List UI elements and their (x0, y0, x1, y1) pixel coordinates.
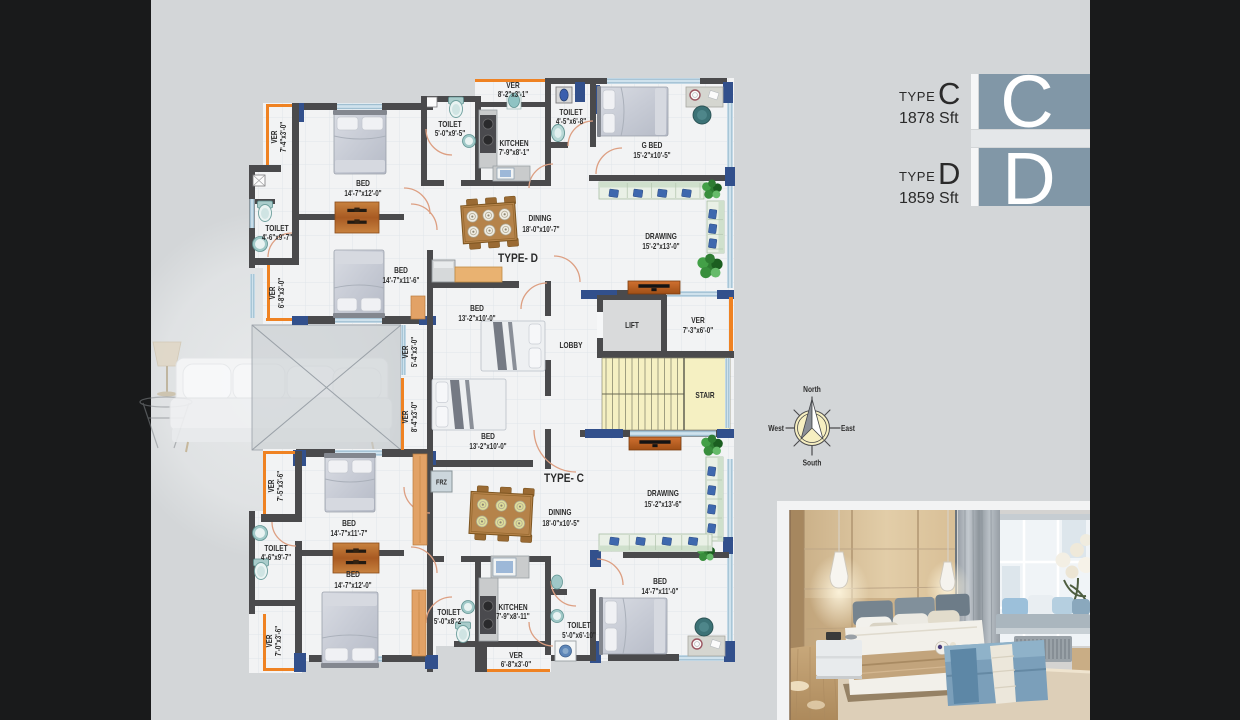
svg-text:15'-2"x10'-5": 15'-2"x10'-5" (633, 152, 670, 160)
svg-text:13'-2"x10'-0": 13'-2"x10'-0" (458, 315, 495, 323)
svg-text:BED: BED (470, 303, 484, 313)
svg-text:7'-5"x3'-6": 7'-5"x3'-6" (277, 471, 285, 501)
svg-text:4'-6"x9'-7": 4'-6"x9'-7" (262, 234, 292, 242)
svg-text:4'-5"x6'-8": 4'-5"x6'-8" (556, 118, 586, 126)
svg-text:14'-7"x11'-7": 14'-7"x11'-7" (331, 530, 368, 538)
svg-text:BED: BED (394, 265, 408, 275)
svg-text:14'-7"x12'-0": 14'-7"x12'-0" (334, 582, 371, 590)
svg-text:5'-0"x9'-5": 5'-0"x9'-5" (435, 130, 465, 138)
svg-text:7'-3"x6'-0": 7'-3"x6'-0" (683, 327, 713, 335)
svg-text:14'-7"x11'-0": 14'-7"x11'-0" (642, 588, 679, 596)
svg-text:TOILET: TOILET (567, 620, 591, 630)
svg-text:BED: BED (653, 576, 667, 586)
svg-text:6'-8"x3'-0": 6'-8"x3'-0" (501, 661, 531, 669)
svg-text:DINING: DINING (529, 213, 552, 223)
svg-text:TOILET: TOILET (437, 607, 461, 617)
svg-text:18'-0"x10'-7": 18'-0"x10'-7" (522, 226, 559, 234)
svg-text:TOILET: TOILET (264, 543, 288, 553)
svg-text:14'-7"x11'-6": 14'-7"x11'-6" (383, 277, 420, 285)
svg-text:VER: VER (266, 635, 274, 648)
svg-text:7'-9"x8'-11": 7'-9"x8'-11" (496, 613, 529, 621)
svg-text:STAIR: STAIR (695, 390, 715, 400)
svg-text:TOILET: TOILET (559, 107, 583, 117)
svg-text:5'-4"x3'-0": 5'-4"x3'-0" (411, 337, 419, 367)
svg-text:TOILET: TOILET (265, 223, 289, 233)
svg-text:BED: BED (342, 518, 356, 528)
svg-text:TYPE: TYPE (899, 169, 935, 184)
svg-text:VER: VER (268, 480, 276, 493)
svg-text:D: D (938, 156, 960, 191)
svg-text:VER: VER (269, 287, 277, 300)
svg-text:6'-8"x3'-0": 6'-8"x3'-0" (278, 278, 286, 308)
svg-text:1859 Sft: 1859 Sft (899, 190, 959, 207)
svg-text:18'-0"x10'-5": 18'-0"x10'-5" (542, 520, 579, 528)
svg-text:LOBBY: LOBBY (560, 340, 583, 350)
svg-text:VER: VER (402, 411, 410, 424)
svg-text:15'-2"x13'-6": 15'-2"x13'-6" (644, 501, 681, 509)
svg-text:15'-2"x13'-0": 15'-2"x13'-0" (642, 243, 679, 251)
svg-text:7'-9"x8'-1": 7'-9"x8'-1" (499, 149, 529, 157)
svg-text:VER: VER (506, 80, 520, 90)
svg-text:VER: VER (691, 315, 705, 325)
svg-text:8'-2"x3'-1": 8'-2"x3'-1" (498, 91, 528, 99)
svg-text:5'-0"x6'-10": 5'-0"x6'-10" (562, 632, 596, 640)
svg-text:5'-0"x8'-2": 5'-0"x8'-2" (434, 618, 464, 626)
svg-text:DRAWING: DRAWING (645, 231, 677, 241)
svg-text:7'-0"x3'-6": 7'-0"x3'-6" (275, 626, 283, 656)
svg-text:D: D (1002, 137, 1055, 220)
svg-text:VER: VER (402, 346, 410, 359)
svg-text:TOILET: TOILET (438, 119, 462, 129)
svg-text:LIFT: LIFT (625, 320, 639, 330)
svg-text:TYPE: TYPE (899, 89, 935, 104)
svg-text:East: East (841, 423, 855, 433)
svg-text:BED: BED (481, 431, 495, 441)
svg-text:West: West (768, 423, 784, 433)
svg-text:TYPE- D: TYPE- D (498, 253, 538, 265)
svg-text:BED: BED (356, 178, 370, 188)
svg-text:North: North (803, 384, 821, 394)
svg-text:7'-4"x3'-0": 7'-4"x3'-0" (280, 122, 288, 152)
svg-text:KITCHEN: KITCHEN (499, 138, 528, 148)
svg-text:FRZ: FRZ (436, 479, 447, 487)
svg-text:G BED: G BED (642, 140, 663, 150)
svg-text:C: C (938, 76, 960, 111)
svg-text:VER: VER (509, 650, 523, 660)
svg-text:14'-7"x12'-0": 14'-7"x12'-0" (344, 190, 381, 198)
svg-text:DINING: DINING (549, 507, 572, 517)
svg-text:KITCHEN: KITCHEN (498, 602, 527, 612)
svg-text:1878 Sft: 1878 Sft (899, 110, 959, 127)
svg-text:4'-6"x9'-7": 4'-6"x9'-7" (261, 554, 291, 562)
svg-text:VER: VER (271, 131, 279, 144)
svg-text:13'-2"x10'-0": 13'-2"x10'-0" (469, 443, 506, 451)
svg-text:DRAWING: DRAWING (647, 488, 679, 498)
svg-text:8'-4"x3'-0": 8'-4"x3'-0" (411, 402, 419, 432)
svg-text:BED: BED (346, 569, 360, 579)
svg-text:TYPE- C: TYPE- C (544, 473, 584, 485)
svg-text:South: South (803, 458, 822, 468)
